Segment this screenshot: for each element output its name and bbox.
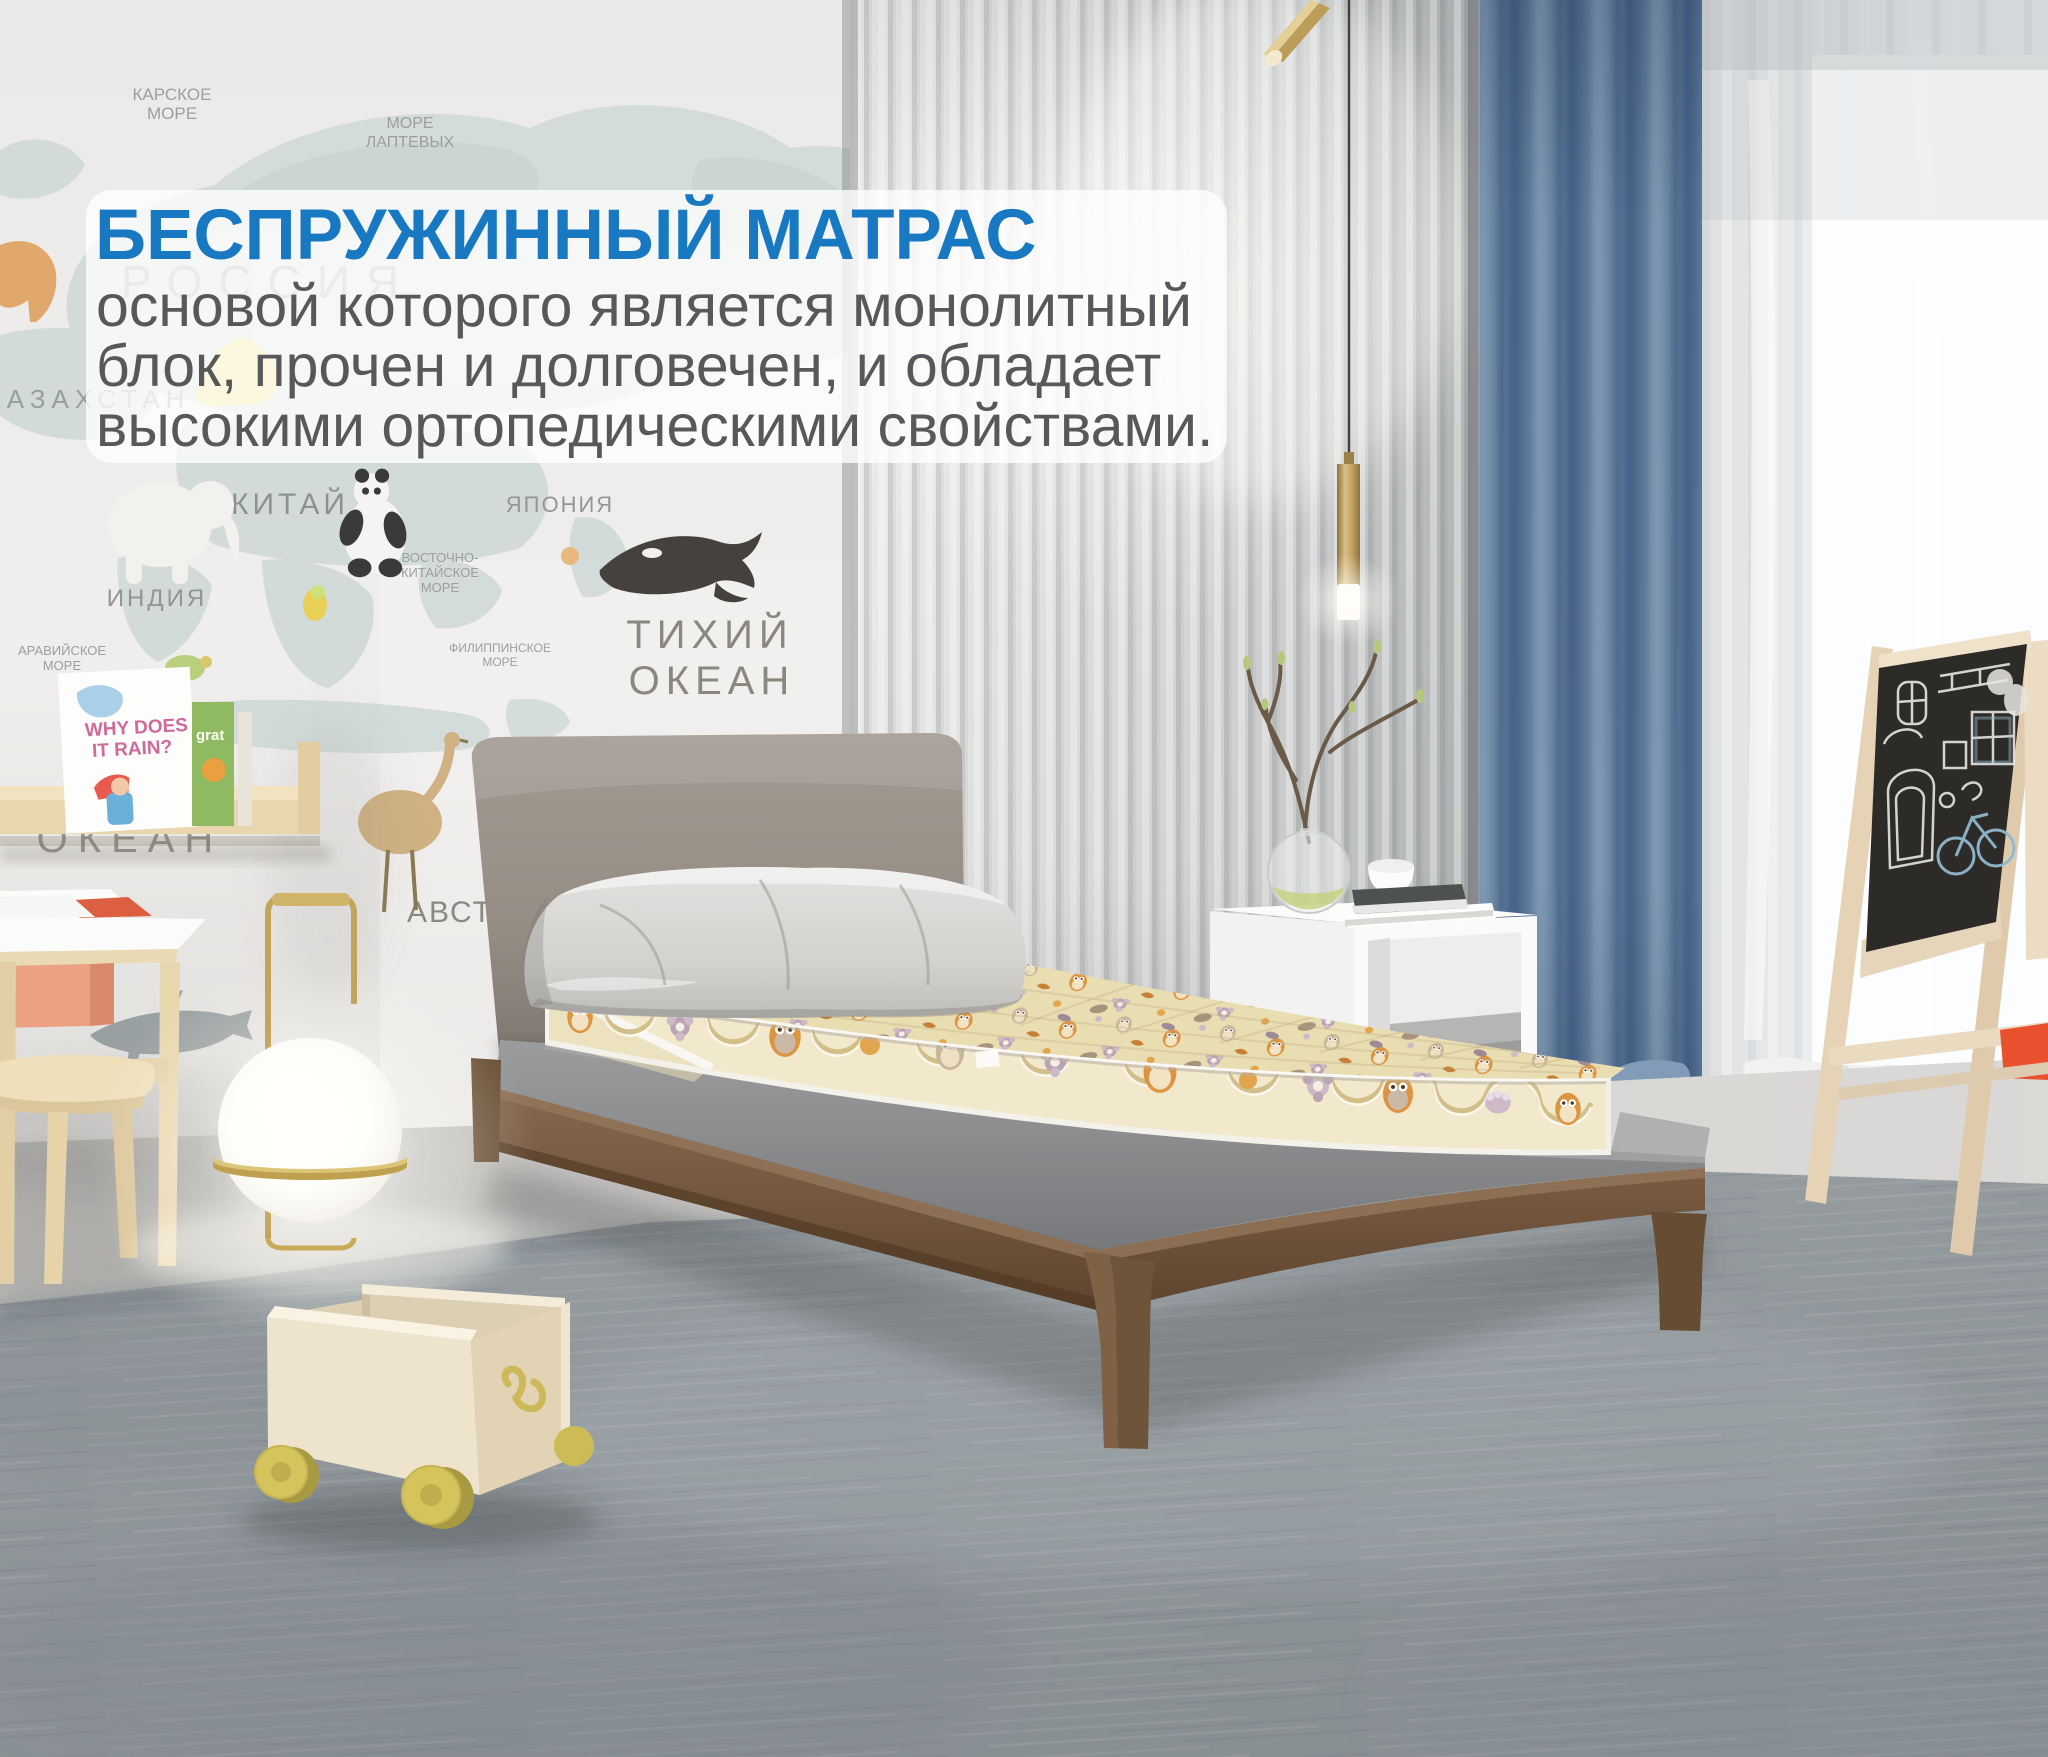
svg-text:МОРЕ: МОРЕ bbox=[421, 580, 460, 595]
svg-text:МОРЕ: МОРЕ bbox=[43, 658, 82, 673]
svg-text:ТИХИЙ: ТИХИЙ bbox=[626, 611, 793, 657]
svg-text:АРАВИЙСКОЕ: АРАВИЙСКОЕ bbox=[18, 643, 106, 658]
svg-text:АВСТ: АВСТ bbox=[407, 896, 493, 929]
svg-text:ЯПОНИЯ: ЯПОНИЯ bbox=[506, 492, 614, 517]
svg-text:ФИЛИППИНСКОЕ: ФИЛИППИНСКОЕ bbox=[449, 641, 551, 655]
svg-text:КИТАЙСКОЕ: КИТАЙСКОЕ bbox=[401, 565, 479, 580]
svg-text:ОКЕАН: ОКЕАН bbox=[629, 659, 796, 703]
svg-text:КИТАЙ: КИТАЙ bbox=[231, 487, 349, 521]
svg-text:ИНДИЯ: ИНДИЯ bbox=[107, 585, 207, 612]
svg-text:КАРСКОЕ: КАРСКОЕ bbox=[133, 85, 212, 104]
svg-text:МОРЕ: МОРЕ bbox=[386, 115, 433, 132]
svg-text:МОРЕ: МОРЕ bbox=[147, 104, 197, 123]
svg-text:IT RAIN?: IT RAIN? bbox=[91, 737, 172, 762]
svg-text:МОРЕ: МОРЕ bbox=[482, 655, 517, 669]
svg-text:grat: grat bbox=[196, 727, 224, 744]
svg-text:ЛАПТЕВЫХ: ЛАПТЕВЫХ bbox=[366, 134, 455, 151]
svg-text:ВОСТОЧНО-: ВОСТОЧНО- bbox=[402, 550, 479, 565]
